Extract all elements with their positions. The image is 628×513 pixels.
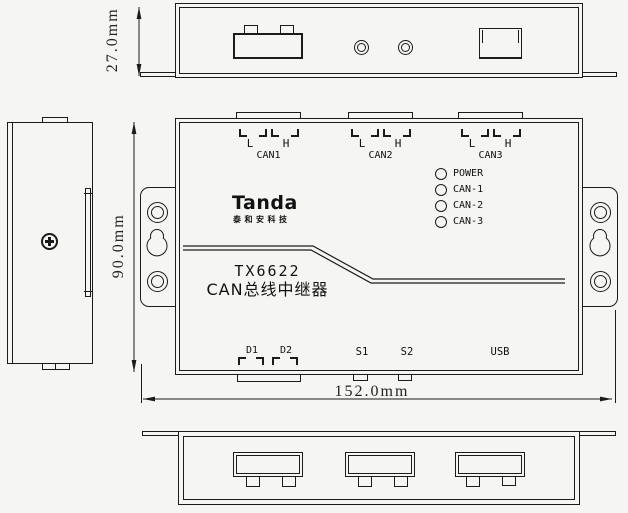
- connector-pin-tab: [282, 477, 296, 487]
- terminal-group-can3: L H CAN3: [458, 129, 523, 163]
- led-label-can3: CAN-3: [453, 216, 483, 228]
- terminal-mark-icon: [239, 129, 247, 137]
- connector-pin-tab: [394, 477, 408, 487]
- side-body-inner-line: [12, 123, 13, 363]
- terminal-group-can2: L H CAN2: [348, 129, 413, 163]
- round-hole-1-inner: [357, 43, 366, 52]
- technical-drawing: 27.0mm: [0, 0, 628, 513]
- led-indicator-power: [435, 168, 447, 180]
- model-number: TX6622: [210, 263, 325, 280]
- side-rail-tick-bottom: [84, 291, 92, 292]
- led-indicator-can2: [435, 200, 447, 212]
- square-port-tick-right: [518, 30, 519, 43]
- terminal-mark-icon: [383, 129, 391, 137]
- terminal-group-can1: L H CAN1: [236, 129, 301, 163]
- bottom-connector-2-inner: [348, 455, 412, 474]
- side-tab-bottom: [42, 364, 70, 370]
- bottom-view-flange-right: [578, 431, 616, 436]
- terminal-mark-icon: [291, 129, 299, 137]
- dimension-line-27mm: [130, 0, 150, 85]
- pin-label-low: L: [354, 138, 370, 151]
- pin-label-high: H: [278, 138, 294, 151]
- mount-hole-right-top-inner: [594, 206, 607, 219]
- led-label-power: POWER: [453, 168, 483, 180]
- terminal-mark-icon: [403, 129, 411, 137]
- mount-hole-left-bottom-inner: [151, 275, 164, 288]
- connector-label-can1: CAN1: [236, 150, 301, 162]
- top-terminal-block: [233, 33, 303, 59]
- side-rail-tick-top: [84, 193, 92, 194]
- terminal-mark-icon: [259, 129, 267, 137]
- connector-pin-tab: [466, 477, 480, 487]
- keyhole-slot-right: [587, 230, 613, 262]
- dimension-label-152mm: 152.0mm: [302, 383, 442, 401]
- product-name: CAN总线中继器: [185, 281, 350, 299]
- led-indicator-can1: [435, 184, 447, 196]
- terminal-mark-icon: [513, 129, 521, 137]
- terminal-mark-icon: [481, 129, 489, 137]
- top-view-flange-right: [582, 72, 617, 77]
- led-label-can2: CAN-2: [453, 200, 483, 212]
- dimension-label-90mm: 90.0mm: [110, 216, 128, 278]
- mount-hole-right-bottom-inner: [594, 275, 607, 288]
- connector-label-can2: CAN2: [348, 150, 413, 162]
- bottom-connector-1-inner: [236, 455, 300, 474]
- keyhole-slot-left: [144, 230, 170, 262]
- pin-label-low: L: [464, 138, 480, 151]
- terminal-mark-icon: [271, 129, 279, 137]
- connector-pin-tab: [358, 477, 372, 487]
- terminal-mark-icon: [371, 129, 379, 137]
- led-indicator-can3: [435, 216, 447, 228]
- led-label-can1: CAN-1: [453, 184, 483, 196]
- square-port-tick-left: [482, 30, 483, 43]
- mount-hole-left-top-inner: [151, 206, 164, 219]
- screw-cross-v: [48, 237, 51, 246]
- terminal-mark-icon: [461, 129, 469, 137]
- terminal-mark-icon: [493, 129, 501, 137]
- square-port: [479, 28, 522, 59]
- side-tab-bottom-divider: [55, 364, 56, 370]
- round-hole-2-inner: [401, 43, 410, 52]
- bottom-connector-3-inner: [458, 455, 522, 474]
- connector-pin-tab: [502, 477, 516, 486]
- side-rail-strip: [85, 188, 91, 297]
- dimension-label-27mm: 27.0mm: [104, 10, 122, 72]
- bottom-view-flange-left: [142, 431, 180, 436]
- pin-label-high: H: [500, 138, 516, 151]
- connector-pin-tab: [246, 477, 260, 487]
- pin-label-low: L: [242, 138, 258, 151]
- pin-label-high: H: [390, 138, 406, 151]
- connector-label-can3: CAN3: [458, 150, 523, 162]
- terminal-mark-icon: [351, 129, 359, 137]
- brand-logo: Tanda: [232, 193, 298, 215]
- brand-tagline: 泰和安科技: [233, 215, 291, 224]
